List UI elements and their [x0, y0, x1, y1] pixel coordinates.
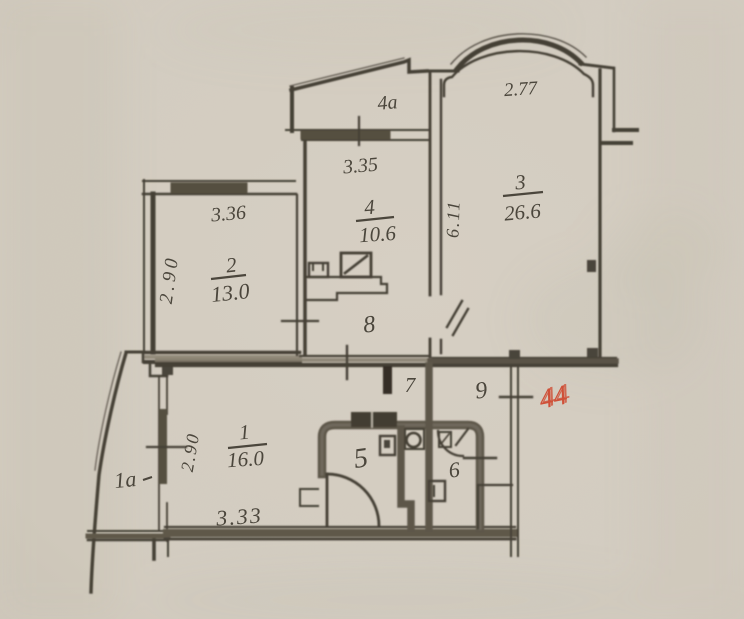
svg-text:16.0: 16.0 — [226, 446, 265, 473]
svg-text:3: 3 — [513, 170, 527, 195]
svg-text:26.6: 26.6 — [503, 198, 542, 225]
svg-text:6.11: 6.11 — [442, 199, 463, 238]
svg-text:3.36: 3.36 — [209, 202, 247, 227]
svg-text:3.35: 3.35 — [341, 154, 379, 179]
svg-text:1: 1 — [238, 420, 251, 445]
svg-text:1a: 1a — [113, 466, 137, 493]
svg-text:3.33: 3.33 — [214, 502, 263, 530]
svg-text:10.6: 10.6 — [358, 221, 397, 248]
svg-text:2.77: 2.77 — [503, 78, 539, 101]
svg-text:13.0: 13.0 — [210, 278, 251, 307]
svg-text:7: 7 — [405, 373, 417, 397]
svg-text:4a: 4a — [377, 91, 399, 115]
